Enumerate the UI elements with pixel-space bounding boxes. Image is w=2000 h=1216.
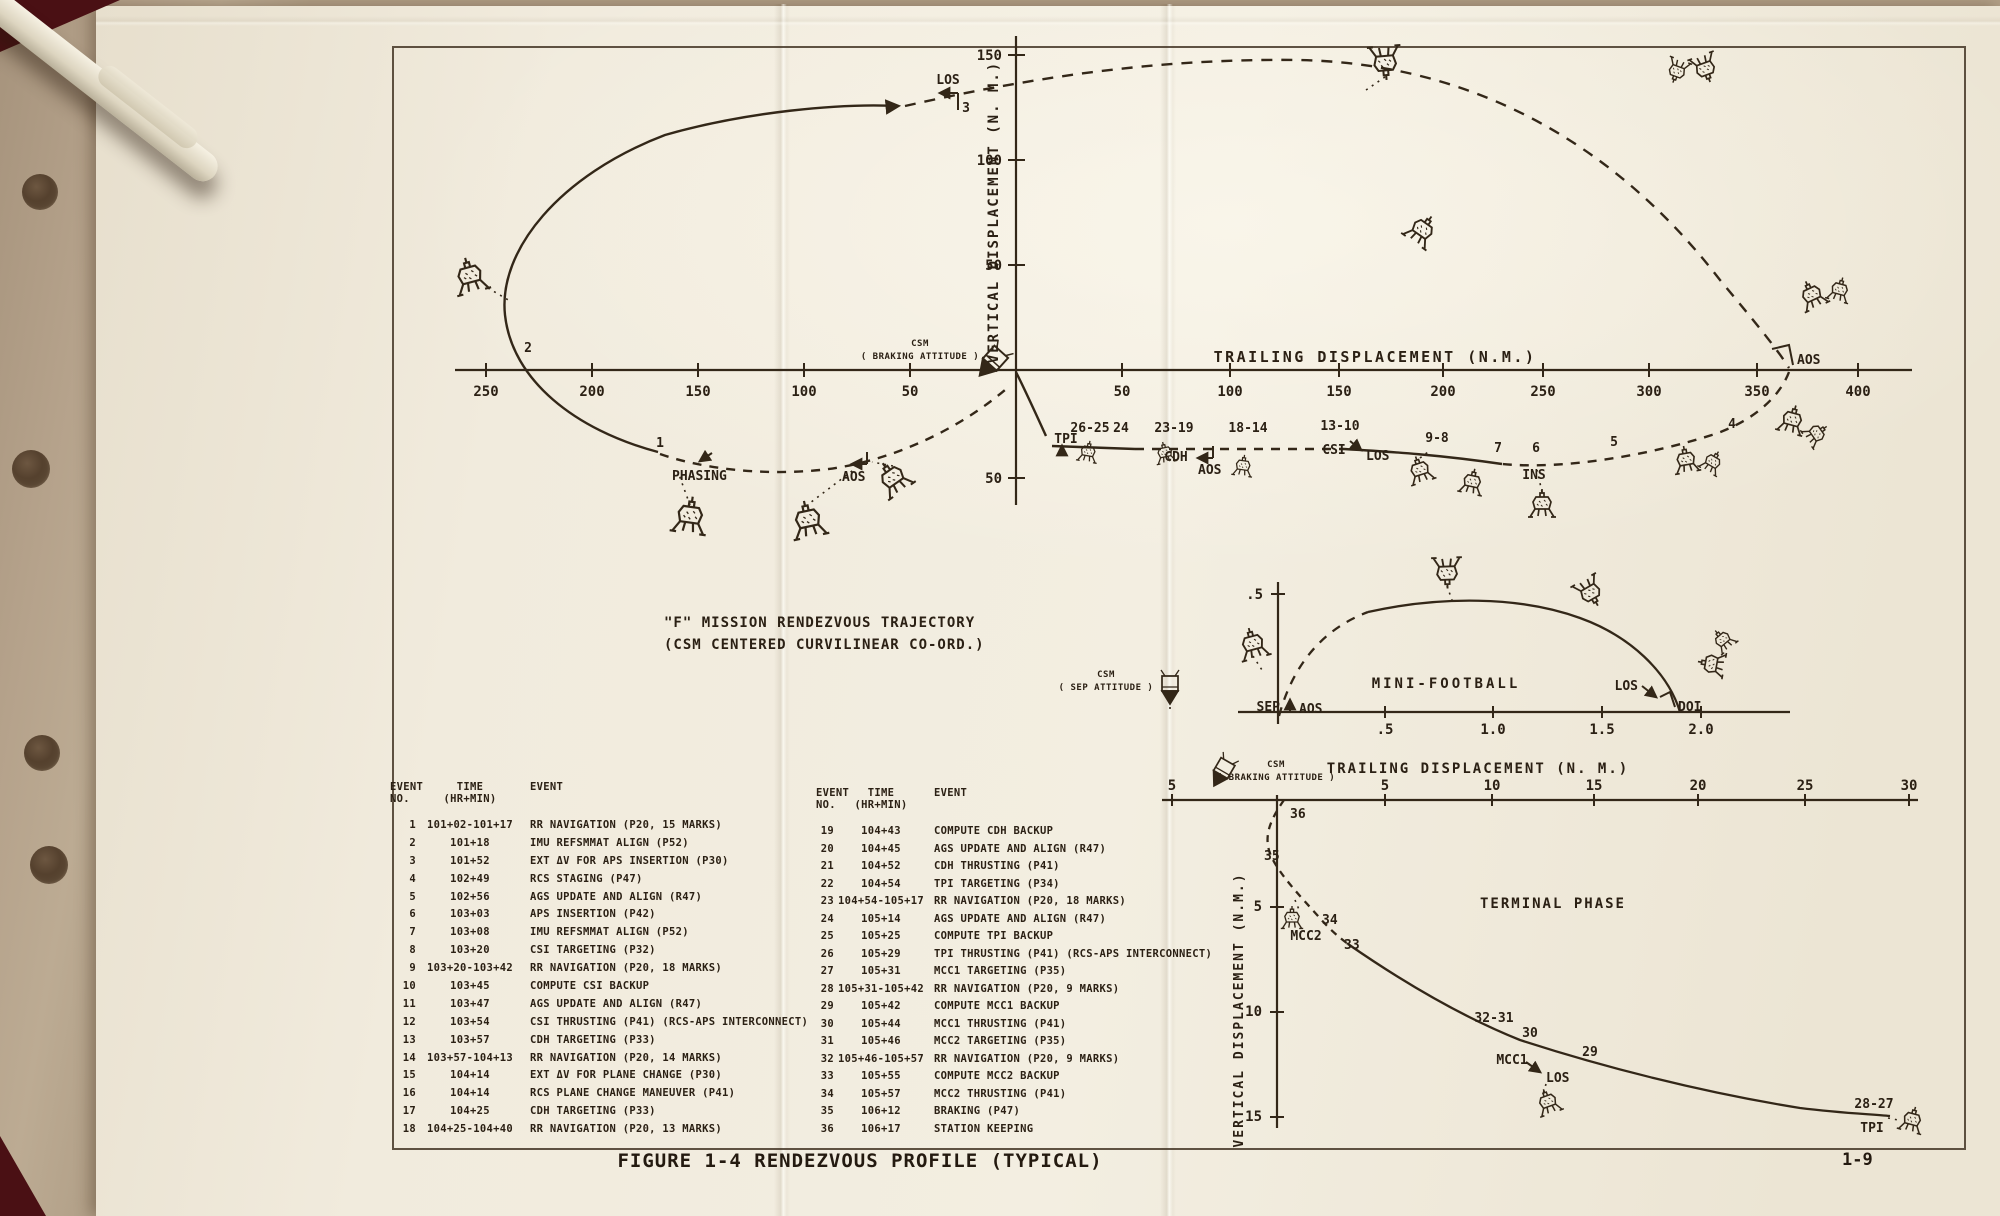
- event-time: 103+57: [416, 1032, 524, 1050]
- x-tick-label: 300: [1636, 384, 1661, 400]
- event-row: 2 101+18 IMU REFSMMAT ALIGN (P52): [390, 835, 830, 853]
- event-desc: RCS PLANE CHANGE MANEUVER (P41): [524, 1085, 830, 1103]
- column-header-event: EVENT: [928, 787, 1246, 823]
- event-time: 104+54: [834, 876, 928, 894]
- event-desc: EXT ΔV FOR PLANE CHANGE (P30): [524, 1067, 830, 1085]
- event-label: MCC1: [1496, 1053, 1527, 1068]
- event-label: LOS: [936, 73, 960, 88]
- scanned-document-page: "F" MISSION RENDEZVOUS TRAJECTORY(CSM CE…: [0, 0, 2000, 1216]
- event-label: MCC2: [1290, 929, 1321, 944]
- event-desc: RR NAVIGATION (P20, 9 MARKS): [928, 1051, 1246, 1069]
- column-header-event-no: EVENTNO.: [816, 787, 834, 823]
- event-time: 106+12: [834, 1103, 928, 1121]
- event-time: 101+18: [416, 835, 524, 853]
- lm-icon: [1528, 489, 1556, 517]
- x-tick-label: 30: [1901, 778, 1918, 794]
- event-desc: BRAKING (P47): [928, 1103, 1246, 1121]
- csm-icon: [1206, 752, 1239, 790]
- event-row: 24 105+14 AGS UPDATE AND ALIGN (R47): [816, 911, 1246, 929]
- x-tick-label: 200: [1430, 384, 1455, 400]
- event-label: 18-14: [1228, 421, 1267, 436]
- event-label: 33: [1344, 938, 1360, 953]
- event-row: 14 103+57-104+13 RR NAVIGATION (P20, 14 …: [390, 1050, 830, 1068]
- event-no: 25: [816, 928, 834, 946]
- event-desc: MCC2 THRUSTING (P41): [928, 1086, 1246, 1104]
- event-desc: IMU REFSMMAT ALIGN (P52): [524, 924, 830, 942]
- event-no: 20: [816, 841, 834, 859]
- event-desc: TPI TARGETING (P34): [928, 876, 1246, 894]
- main-trajectory-chart: 250 200 150 100 50 50 100 150 200 250 30…: [448, 36, 1912, 540]
- event-desc: RR NAVIGATION (P20, 15 MARKS): [524, 817, 830, 835]
- column-header-event-no: EVENTNO.: [390, 781, 416, 817]
- term-event-labels: 36 35 34 MCC2 33 32-31 30 MCC1 LOS 29 28…: [1217, 760, 1894, 1136]
- x-tick-label: 50: [1114, 384, 1131, 400]
- event-row: 21 104+52 CDH THRUSTING (P41): [816, 858, 1246, 876]
- event-desc: AGS UPDATE AND ALIGN (R47): [524, 889, 830, 907]
- event-desc: CDH THRUSTING (P41): [928, 858, 1246, 876]
- header-line: (HR+MIN): [444, 793, 497, 805]
- event-desc: RR NAVIGATION (P20, 18 MARKS): [524, 960, 830, 978]
- event-label: INS: [1522, 468, 1546, 483]
- x-tick-label: 1.0: [1480, 722, 1505, 738]
- event-label: 24: [1113, 421, 1129, 436]
- event-desc: EXT ΔV FOR APS INSERTION (P30): [524, 853, 830, 871]
- event-label: AOS: [1299, 702, 1323, 717]
- event-time: 103+45: [416, 978, 524, 996]
- lm-pair-icon: [1793, 263, 1862, 322]
- event-no: 19: [816, 823, 834, 841]
- column-header-time: TIME(HR+MIN): [416, 781, 524, 817]
- event-row: 5 102+56 AGS UPDATE AND ALIGN (R47): [390, 889, 830, 907]
- event-desc: CDH TARGETING (P33): [524, 1032, 830, 1050]
- terminal-phase-chart: 5 5 10 15 20 25 30 5 10 15 TERMINAL PHAS…: [1162, 752, 1928, 1148]
- dotted-leaders: [1295, 900, 1898, 1120]
- event-no: 9: [390, 960, 416, 978]
- event-no: 2: [390, 835, 416, 853]
- event-desc: TPI THRUSTING (P41) (RCS-APS INTERCONNEC…: [928, 946, 1246, 964]
- event-label: AOS: [842, 470, 866, 485]
- event-time: 105+14: [834, 911, 928, 929]
- event-time: 104+25: [416, 1103, 524, 1121]
- lm-icon: [1231, 453, 1255, 477]
- event-row: 1 101+02-101+17 RR NAVIGATION (P20, 15 M…: [390, 817, 830, 835]
- event-desc: CDH TARGETING (P33): [524, 1103, 830, 1121]
- event-row: 31 105+46 MCC2 TARGETING (P35): [816, 1033, 1246, 1051]
- mini-los-arrow: [1642, 686, 1656, 697]
- lm-icon: [1367, 45, 1403, 81]
- lm-icon: [1897, 1104, 1928, 1135]
- column-header-event: EVENT: [524, 781, 830, 817]
- orbit-dashed-top: [905, 60, 1789, 368]
- event-label: PHASING: [672, 469, 727, 484]
- event-row: 30 105+44 MCC1 THRUSTING (P41): [816, 1016, 1246, 1034]
- event-table-body: 19 104+43 COMPUTE CDH BACKUP 20 104+45 A…: [816, 823, 1246, 1138]
- event-no: 14: [390, 1050, 416, 1068]
- event-row: 7 103+08 IMU REFSMMAT ALIGN (P52): [390, 924, 830, 942]
- lm-icon: [1570, 573, 1610, 613]
- event-row: 19 104+43 COMPUTE CDH BACKUP: [816, 823, 1246, 841]
- event-no: 36: [816, 1121, 834, 1139]
- y-tick-label: 10: [1245, 1004, 1262, 1020]
- mini-football-title: MINI-FOOTBALL: [1372, 676, 1521, 692]
- event-desc: RR NAVIGATION (P20, 9 MARKS): [928, 981, 1246, 999]
- event-row: 33 105+55 COMPUTE MCC2 BACKUP: [816, 1068, 1246, 1086]
- event-time: 103+20-103+42: [416, 960, 524, 978]
- event-table-body: 1 101+02-101+17 RR NAVIGATION (P20, 15 M…: [390, 817, 830, 1139]
- event-no: 24: [816, 911, 834, 929]
- event-row: 27 105+31 MCC1 TARGETING (P35): [816, 963, 1246, 981]
- event-no: 31: [816, 1033, 834, 1051]
- csm-label: CSM: [1097, 670, 1115, 680]
- csm-label: CSM: [911, 339, 929, 349]
- event-desc: RR NAVIGATION (P20, 18 MARKS): [928, 893, 1246, 911]
- lm-pair-icon: [1772, 402, 1838, 454]
- event-table-header: EVENTNO. TIME(HR+MIN) EVENT: [390, 781, 830, 817]
- event-label: 28-27: [1854, 1097, 1893, 1112]
- event-desc: COMPUTE CDH BACKUP: [928, 823, 1246, 841]
- column-header-time: TIME(HR+MIN): [834, 787, 928, 823]
- event-row: 32 105+46-105+57 RR NAVIGATION (P20, 9 M…: [816, 1051, 1246, 1069]
- event-time: 103+08: [416, 924, 524, 942]
- event-row: 34 105+57 MCC2 THRUSTING (P41): [816, 1086, 1246, 1104]
- x-tick-label: 200: [579, 384, 604, 400]
- x-tick-label: 15: [1586, 778, 1603, 794]
- phasing-arrow: [700, 453, 712, 461]
- event-row: 12 103+54 CSI THRUSTING (P41) (RCS-APS I…: [390, 1014, 830, 1032]
- lm-icon: [1532, 1085, 1564, 1117]
- event-table-left: EVENTNO. TIME(HR+MIN) EVENT 1 101+02-101…: [390, 781, 830, 1139]
- event-desc: MCC1 TARGETING (P35): [928, 963, 1246, 981]
- x-tick-label: 2.0: [1688, 722, 1713, 738]
- event-no: 34: [816, 1086, 834, 1104]
- event-no: 35: [816, 1103, 834, 1121]
- event-label: 13-10: [1320, 419, 1359, 434]
- x-tick-label: 10: [1484, 778, 1501, 794]
- lm-icon: [448, 253, 491, 296]
- header-line: (HR+MIN): [855, 799, 908, 811]
- event-row: 20 104+45 AGS UPDATE AND ALIGN (R47): [816, 841, 1246, 859]
- event-label: LOS: [1615, 679, 1639, 694]
- event-time: 105+25: [834, 928, 928, 946]
- event-no: 27: [816, 963, 834, 981]
- x-tick-label: 100: [791, 384, 816, 400]
- header-line: TIME: [868, 787, 895, 799]
- x-tick-label: 250: [473, 384, 498, 400]
- event-label: 1: [656, 436, 664, 451]
- event-desc: COMPUTE TPI BACKUP: [928, 928, 1246, 946]
- event-time: 104+25-104+40: [416, 1121, 524, 1139]
- event-time: 105+46: [834, 1033, 928, 1051]
- event-row: 4 102+49 RCS STAGING (P47): [390, 871, 830, 889]
- term-ticks: [1172, 794, 1909, 1117]
- event-no: 7: [390, 924, 416, 942]
- event-no: 1: [390, 817, 416, 835]
- event-row: 10 103+45 COMPUTE CSI BACKUP: [390, 978, 830, 996]
- event-label: 7: [1494, 441, 1502, 456]
- event-time: 104+14: [416, 1067, 524, 1085]
- x-tick-label: 50: [902, 384, 919, 400]
- event-desc: CSI TARGETING (P32): [524, 942, 830, 960]
- event-time: 105+29: [834, 946, 928, 964]
- event-time: 101+52: [416, 853, 524, 871]
- event-desc: AGS UPDATE AND ALIGN (R47): [928, 911, 1246, 929]
- event-time: 105+31-105+42: [834, 981, 928, 999]
- event-row: 15 104+14 EXT ΔV FOR PLANE CHANGE (P30): [390, 1067, 830, 1085]
- csm-attitude-label: ( BRAKING ATTITUDE ): [861, 352, 979, 362]
- event-desc: MCC1 THRUSTING (P41): [928, 1016, 1246, 1034]
- lm-pair-icon: [1655, 41, 1723, 97]
- event-label: TPI: [1860, 1121, 1883, 1136]
- event-label: 36: [1290, 807, 1306, 822]
- term-solid-arc: [1348, 944, 1890, 1116]
- event-row: 26 105+29 TPI THRUSTING (P41) (RCS-APS I…: [816, 946, 1246, 964]
- csm-attitude-label: ( SEP ATTITUDE ): [1059, 683, 1154, 693]
- event-time: 105+31: [834, 963, 928, 981]
- header-line: EVENT: [934, 787, 967, 799]
- lm-icon: [1281, 906, 1303, 928]
- event-no: 8: [390, 942, 416, 960]
- event-time: 104+52: [834, 858, 928, 876]
- event-no: 21: [816, 858, 834, 876]
- event-no: 17: [390, 1103, 416, 1121]
- event-time: 104+43: [834, 823, 928, 841]
- event-row: 17 104+25 CDH TARGETING (P33): [390, 1103, 830, 1121]
- event-desc: AGS UPDATE AND ALIGN (R47): [928, 841, 1246, 859]
- event-time: 104+14: [416, 1085, 524, 1103]
- event-desc: RR NAVIGATION (P20, 13 MARKS): [524, 1121, 830, 1139]
- event-desc: COMPUTE MCC2 BACKUP: [928, 1068, 1246, 1086]
- event-desc: COMPUTE CSI BACKUP: [524, 978, 830, 996]
- event-time: 106+17: [834, 1121, 928, 1139]
- event-time: 104+45: [834, 841, 928, 859]
- event-desc: RCS STAGING (P47): [524, 871, 830, 889]
- y-tick-label: 5: [1254, 899, 1262, 915]
- mini-dashed-arc: [1279, 612, 1368, 716]
- lm-icon: [1234, 624, 1272, 662]
- page-number: 1-9: [1842, 1150, 1873, 1170]
- event-label: 32-31: [1474, 1011, 1513, 1026]
- event-label: 35: [1264, 849, 1280, 864]
- event-time: 103+20: [416, 942, 524, 960]
- orbit-solid-arc: [504, 105, 898, 452]
- event-no: 10: [390, 978, 416, 996]
- event-desc: AGS UPDATE AND ALIGN (R47): [524, 996, 830, 1014]
- event-label: 34: [1322, 913, 1338, 928]
- x-tick-label: 150: [1326, 384, 1351, 400]
- main-y-axis-label: VERTICAL DISPLACEMENT (N. M.): [986, 61, 1002, 363]
- event-time: 103+03: [416, 906, 524, 924]
- event-label: DOI: [1678, 700, 1701, 715]
- main-event-labels: LOS 3 2 1 PHASING AOS CSM ( BRAKING ATTI…: [524, 73, 1820, 485]
- header-line: TIME: [457, 781, 484, 793]
- event-time: 103+57-104+13: [416, 1050, 524, 1068]
- event-no: 22: [816, 876, 834, 894]
- header-line: NO.: [390, 793, 410, 805]
- event-label: LOS: [1546, 1071, 1570, 1086]
- lm-icon: [1457, 466, 1487, 496]
- term-los-arrow: [1526, 1062, 1540, 1072]
- event-row: 28 105+31-105+42 RR NAVIGATION (P20, 9 M…: [816, 981, 1246, 999]
- event-label: AOS: [1797, 353, 1821, 368]
- event-row: 3 101+52 EXT ΔV FOR APS INSERTION (P30): [390, 853, 830, 871]
- mini-football-chart: .5 1.0 1.5 2.0 .5 MINI-FOOTBALL TRAILING…: [1059, 557, 1790, 777]
- event-label: 5: [1610, 435, 1618, 450]
- event-row: 35 106+12 BRAKING (P47): [816, 1103, 1246, 1121]
- event-row: 16 104+14 RCS PLANE CHANGE MANEUVER (P41…: [390, 1085, 830, 1103]
- event-no: 30: [816, 1016, 834, 1034]
- event-table-right: EVENTNO. TIME(HR+MIN) EVENT 19 104+43 CO…: [816, 787, 1246, 1138]
- event-no: 6: [390, 906, 416, 924]
- x-tick-label: 1.5: [1589, 722, 1614, 738]
- event-row: 22 104+54 TPI TARGETING (P34): [816, 876, 1246, 894]
- x-tick-label: 400: [1845, 384, 1870, 400]
- event-time: 105+55: [834, 1068, 928, 1086]
- mini-ticks: [1271, 594, 1701, 718]
- event-no: 11: [390, 996, 416, 1014]
- mini-x-axis-label: TRAILING DISPLACEMENT (N. M.): [1327, 761, 1629, 777]
- terminal-phase-title: TERMINAL PHASE: [1480, 896, 1626, 912]
- event-desc: CSI THRUSTING (P41) (RCS-APS INTERCONNEC…: [524, 1014, 830, 1032]
- lm-icon: [1401, 208, 1444, 251]
- origin-arc: [1016, 372, 1046, 436]
- aos-right-bracket: [1772, 345, 1793, 365]
- event-desc: STATION KEEPING: [928, 1121, 1246, 1139]
- event-row: 6 103+03 APS INSERTION (P42): [390, 906, 830, 924]
- x-tick-label: 350: [1744, 384, 1769, 400]
- mini-solid-arc: [1368, 601, 1680, 712]
- x-tick-label: 150: [685, 384, 710, 400]
- event-desc: IMU REFSMMAT ALIGN (P52): [524, 835, 830, 853]
- event-time: 105+46-105+57: [834, 1051, 928, 1069]
- event-row: 11 103+47 AGS UPDATE AND ALIGN (R47): [390, 996, 830, 1014]
- orbit-arrowhead: [886, 106, 898, 107]
- event-row: 13 103+57 CDH TARGETING (P33): [390, 1032, 830, 1050]
- x-tick-label: 5: [1381, 778, 1389, 794]
- event-no: 33: [816, 1068, 834, 1086]
- term-tick-labels: 5 5 10 15 20 25 30 5 10 15: [1168, 778, 1918, 1125]
- event-desc: APS INSERTION (P42): [524, 906, 830, 924]
- event-row: 8 103+20 CSI TARGETING (P32): [390, 942, 830, 960]
- event-desc: MCC2 TARGETING (P35): [928, 1033, 1246, 1051]
- event-no: 5: [390, 889, 416, 907]
- lm-icon: [1076, 439, 1100, 463]
- main-x-axis-label: TRAILING DISPLACEMENT (N.M.): [1214, 348, 1537, 366]
- x-tick-label: 20: [1690, 778, 1707, 794]
- phasing-dashed-arc: [660, 390, 1005, 472]
- lm-icon: [869, 454, 916, 501]
- event-no: 3: [390, 853, 416, 871]
- event-row: 36 106+17 STATION KEEPING: [816, 1121, 1246, 1139]
- csm-attitude-label: ( BRAKING ATTITUDE ): [1217, 773, 1335, 783]
- lm-icon: [786, 497, 829, 540]
- event-time: 103+47: [416, 996, 524, 1014]
- lm-icon: [670, 494, 711, 535]
- x-tick-label: 250: [1530, 384, 1555, 400]
- event-table-header: EVENTNO. TIME(HR+MIN) EVENT: [816, 787, 1246, 823]
- event-no: 13: [390, 1032, 416, 1050]
- event-label: 29: [1582, 1045, 1598, 1060]
- event-time: 104+54-105+17: [834, 893, 928, 911]
- event-time: 101+02-101+17: [416, 817, 524, 835]
- event-label: 6: [1532, 441, 1540, 456]
- event-no: 28: [816, 981, 834, 999]
- event-time: 105+57: [834, 1086, 928, 1104]
- y-tick-label: 15: [1245, 1109, 1262, 1125]
- event-label: AOS: [1198, 463, 1222, 478]
- csm-icon: [1161, 670, 1179, 704]
- event-label: 3: [962, 101, 970, 116]
- event-desc: COMPUTE MCC1 BACKUP: [928, 998, 1246, 1016]
- y-tick-label: 50: [985, 471, 1002, 487]
- event-label: LOS: [1366, 449, 1390, 464]
- event-label: SEP: [1257, 700, 1281, 715]
- event-row: 9 103+20-103+42 RR NAVIGATION (P20, 18 M…: [390, 960, 830, 978]
- y-tick-label: .5: [1246, 587, 1263, 603]
- event-label: 4: [1728, 417, 1736, 432]
- csm-label: CSM: [1267, 760, 1285, 770]
- event-row: 29 105+42 COMPUTE MCC1 BACKUP: [816, 998, 1246, 1016]
- event-time: 102+49: [416, 871, 524, 889]
- event-time: 102+56: [416, 889, 524, 907]
- event-time: 103+54: [416, 1014, 524, 1032]
- figure-caption: FIGURE 1-4 RENDEZVOUS PROFILE (TYPICAL): [560, 1150, 1160, 1172]
- event-label: 30: [1522, 1026, 1538, 1041]
- x-tick-label: 25: [1797, 778, 1814, 794]
- event-label: 26-25: [1070, 421, 1109, 436]
- event-no: 23: [816, 893, 834, 911]
- event-no: 29: [816, 998, 834, 1016]
- event-no: 18: [390, 1121, 416, 1139]
- event-no: 16: [390, 1085, 416, 1103]
- lm-pair-icon: [1696, 620, 1741, 681]
- event-row: 23 104+54-105+17 RR NAVIGATION (P20, 18 …: [816, 893, 1246, 911]
- event-desc: RR NAVIGATION (P20, 14 MARKS): [524, 1050, 830, 1068]
- header-line: EVENT: [530, 781, 563, 793]
- event-time: 105+44: [834, 1016, 928, 1034]
- event-label: CSI: [1322, 443, 1345, 458]
- event-label: 2: [524, 341, 532, 356]
- event-label: 23-19: [1154, 421, 1193, 436]
- event-row: 25 105+25 COMPUTE TPI BACKUP: [816, 928, 1246, 946]
- event-no: 26: [816, 946, 834, 964]
- event-no: 12: [390, 1014, 416, 1032]
- event-no: 4: [390, 871, 416, 889]
- x-tick-label: 100: [1217, 384, 1242, 400]
- event-no: 15: [390, 1067, 416, 1085]
- x-tick-label: .5: [1377, 722, 1394, 738]
- event-label: 9-8: [1425, 431, 1449, 446]
- header-line: NO.: [816, 799, 836, 811]
- event-row: 18 104+25-104+40 RR NAVIGATION (P20, 13 …: [390, 1121, 830, 1139]
- lm-icon: [1431, 557, 1463, 589]
- event-time: 105+42: [834, 998, 928, 1016]
- event-no: 32: [816, 1051, 834, 1069]
